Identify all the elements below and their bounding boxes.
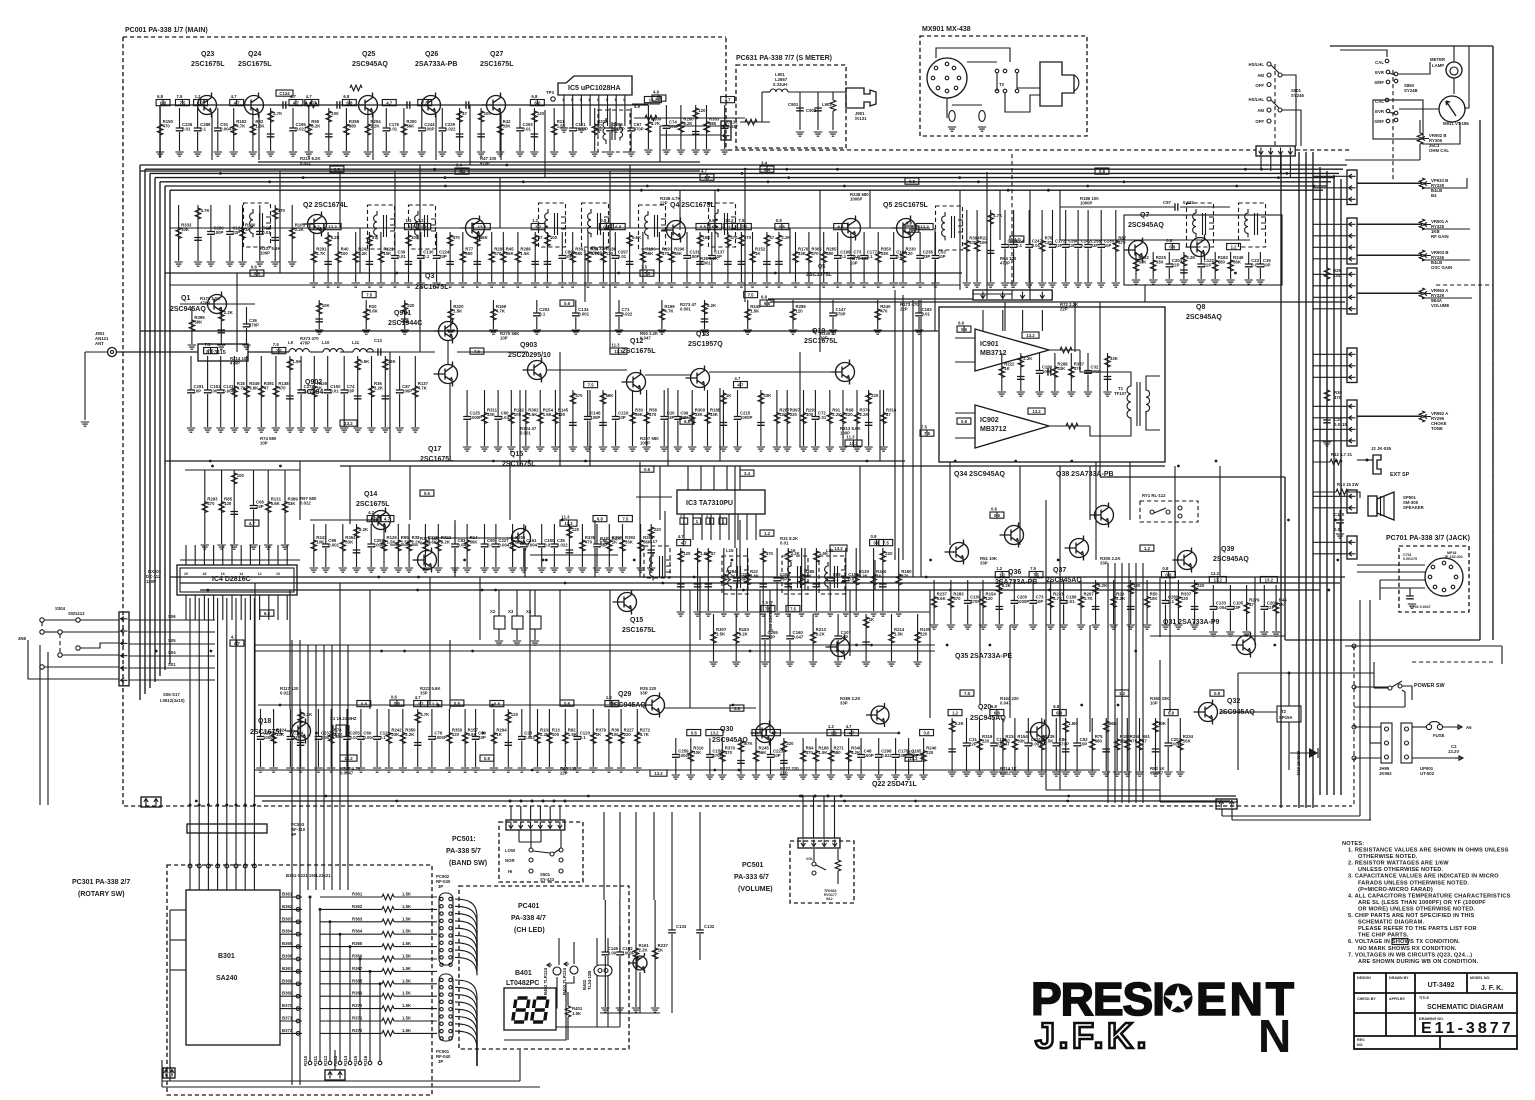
svg-text:7.5: 7.5 — [422, 100, 429, 105]
svg-text:L17: L17 — [650, 539, 658, 544]
svg-text:L8 L3115: L8 L3115 — [203, 350, 226, 356]
svg-text:10K: 10K — [181, 227, 190, 232]
svg-text:22P: 22P — [1055, 243, 1063, 248]
svg-text:B363: B363 — [282, 916, 293, 921]
svg-text:33K: 33K — [710, 412, 719, 417]
svg-text:6.8: 6.8 — [709, 218, 716, 223]
svg-text:C901: C901 — [788, 102, 799, 107]
svg-text:7.5: 7.5 — [641, 265, 648, 270]
svg-text:470: 470 — [744, 235, 752, 240]
svg-text:56K: 56K — [645, 251, 654, 256]
svg-text:4.7: 4.7 — [306, 94, 313, 99]
svg-text:6.8: 6.8 — [991, 704, 998, 709]
svg-text:10P: 10P — [194, 389, 202, 394]
svg-text:10P: 10P — [841, 635, 849, 640]
svg-text:1K: 1K — [876, 573, 882, 578]
svg-text:470P: 470P — [836, 312, 846, 317]
svg-text:220: 220 — [786, 741, 794, 746]
svg-text:B402 TLR124: B402 TLR124 — [543, 967, 548, 995]
svg-text:13.2: 13.2 — [1026, 333, 1035, 338]
svg-text:680: 680 — [826, 251, 834, 256]
svg-text:2SC1675L: 2SC1675L — [356, 501, 390, 508]
svg-text:0.01: 0.01 — [780, 541, 789, 546]
svg-text:220: 220 — [654, 527, 662, 532]
svg-text:13.2: 13.2 — [344, 421, 353, 426]
svg-text:C902: C902 — [806, 108, 817, 113]
svg-text:R365: R365 — [352, 941, 363, 946]
svg-text:0.8: 0.8 — [871, 534, 878, 539]
svg-text:2.2K: 2.2K — [1023, 356, 1033, 361]
svg-text:10P: 10P — [1036, 599, 1044, 604]
svg-text:0.6: 0.6 — [991, 507, 998, 512]
svg-text:120: 120 — [698, 108, 706, 113]
svg-text:B372: B372 — [282, 1028, 293, 1033]
svg-text:JE-152-002: JE-152-002 — [1444, 555, 1463, 559]
svg-text:680: 680 — [349, 123, 357, 128]
svg-text:SCHEMATIC DIAGRAM: SCHEMATIC DIAGRAM — [1427, 1004, 1504, 1011]
svg-text:33P: 33P — [1233, 605, 1241, 610]
svg-text:OHM CAL: OHM CAL — [1429, 148, 1449, 153]
svg-text:2.2K: 2.2K — [370, 123, 380, 128]
svg-text:8.2K: 8.2K — [359, 527, 369, 532]
svg-text:8.2K: 8.2K — [311, 123, 321, 128]
svg-text:33P: 33P — [439, 254, 447, 259]
svg-text:B301: B301 — [218, 953, 235, 960]
svg-text:470: 470 — [730, 235, 738, 240]
svg-text:2SC1675L: 2SC1675L — [191, 61, 225, 68]
svg-text:R364: R364 — [352, 929, 363, 934]
svg-text:R363: R363 — [352, 916, 363, 921]
svg-text:120: 120 — [224, 501, 232, 506]
svg-text:0.022: 0.022 — [622, 312, 633, 317]
svg-text:1K: 1K — [755, 251, 761, 256]
svg-text:C132: C132 — [704, 924, 715, 929]
svg-text:S01: S01 — [168, 662, 176, 667]
svg-text:2.2K: 2.2K — [295, 227, 305, 232]
svg-text:1.5K: 1.5K — [818, 750, 828, 755]
svg-text:22P: 22P — [1060, 307, 1068, 312]
svg-text:IC4 D2816C: IC4 D2816C — [212, 576, 251, 583]
svg-text:LOW: LOW — [505, 848, 516, 853]
svg-text:120: 120 — [572, 527, 580, 532]
svg-text:13.2: 13.2 — [710, 730, 719, 735]
svg-text:EVR: EVR — [1375, 109, 1385, 114]
svg-text:120: 120 — [511, 712, 519, 717]
svg-text:Q27: Q27 — [490, 51, 503, 58]
svg-text:33P: 33P — [667, 415, 675, 420]
svg-text:33K: 33K — [391, 732, 400, 737]
svg-text:1.2: 1.2 — [406, 218, 413, 223]
svg-text:RY1 RL-112: RY1 RL-112 — [1142, 493, 1166, 498]
svg-text:220: 220 — [926, 750, 934, 755]
svg-text:B401: B401 — [515, 970, 532, 977]
svg-text:2SC1675L: 2SC1675L — [806, 272, 832, 278]
svg-text:R13 15 2W: R13 15 2W — [1337, 482, 1359, 487]
svg-text:AM: AM — [1257, 108, 1264, 113]
svg-text:C133: C133 — [676, 924, 687, 929]
svg-text:4.7K: 4.7K — [420, 712, 430, 717]
svg-text:LAMP: LAMP — [1432, 63, 1444, 68]
svg-text:R368: R368 — [352, 978, 363, 983]
svg-text:6.8: 6.8 — [334, 167, 341, 172]
svg-text:11.3: 11.3 — [611, 343, 620, 348]
svg-text:47: 47 — [372, 235, 377, 240]
svg-text:Q5 2SC1675L: Q5 2SC1675L — [883, 202, 928, 209]
svg-text:0.8: 0.8 — [454, 701, 461, 706]
svg-text:2.2K: 2.2K — [1116, 596, 1126, 601]
svg-text:1: 1 — [571, 98, 573, 102]
svg-text:10P: 10P — [1104, 243, 1112, 248]
svg-text:13.2: 13.2 — [920, 224, 929, 229]
svg-text:E11-3877: E11-3877 — [1421, 1020, 1514, 1037]
svg-text:1: 1 — [588, 98, 590, 102]
svg-text:0.022: 0.022 — [300, 161, 311, 166]
svg-text:13.2: 13.2 — [1211, 571, 1220, 576]
svg-text:33P: 33P — [980, 561, 988, 566]
svg-text:PC701 PA-338 3/7 (JACK): PC701 PA-338 3/7 (JACK) — [1386, 535, 1470, 542]
svg-text:6.8: 6.8 — [264, 611, 271, 616]
svg-text:8.2K: 8.2K — [1098, 583, 1108, 588]
svg-text:0.6: 0.6 — [958, 321, 965, 326]
svg-text:1: 1 — [623, 98, 625, 102]
svg-text:2.2K: 2.2K — [639, 947, 649, 952]
svg-text:33P: 33P — [256, 504, 264, 509]
svg-text:0.001: 0.001 — [578, 312, 589, 317]
svg-text:Q35 2SA733A-PE: Q35 2SA733A-PE — [955, 653, 1013, 660]
svg-text:2SA733A-PB: 2SA733A-PB — [415, 61, 457, 68]
svg-text:0.8: 0.8 — [776, 218, 783, 223]
svg-text:56K: 56K — [506, 251, 515, 256]
svg-text:1.2: 1.2 — [606, 695, 613, 700]
svg-text:Q29: Q29 — [618, 691, 631, 698]
svg-text:B367: B367 — [282, 966, 293, 971]
svg-text:7.5: 7.5 — [883, 540, 890, 545]
svg-text:JK952: JK952 — [1379, 771, 1392, 776]
svg-text:470: 470 — [901, 573, 909, 578]
svg-text:1.5K: 1.5K — [402, 954, 412, 959]
svg-text:2SC945AQ: 2SC945AQ — [352, 61, 388, 68]
svg-text:100P: 100P — [402, 389, 412, 394]
svg-text:Q33 2SC945AQ: Q33 2SC945AQ — [768, 600, 773, 632]
svg-text:0.047: 0.047 — [793, 635, 804, 640]
svg-text:120: 120 — [452, 732, 460, 737]
svg-text:R366: R366 — [352, 954, 363, 959]
svg-text:470P: 470P — [200, 301, 210, 306]
svg-text:56K: 56K — [606, 393, 615, 398]
svg-text:100: 100 — [237, 473, 245, 478]
svg-text:0.1: 0.1 — [580, 735, 587, 740]
svg-text:Q26: Q26 — [425, 51, 438, 58]
svg-text:10K: 10K — [980, 240, 989, 245]
svg-text:0.022: 0.022 — [420, 541, 431, 546]
svg-text:1.5K: 1.5K — [520, 251, 530, 256]
svg-text:0.047: 0.047 — [1000, 701, 1011, 706]
svg-text:1.5K: 1.5K — [402, 929, 412, 934]
svg-text:470P: 470P — [480, 161, 490, 166]
svg-text:470: 470 — [207, 501, 215, 506]
svg-text:2.2K: 2.2K — [374, 385, 384, 390]
svg-text:220: 220 — [1197, 583, 1205, 588]
svg-text:Q15: Q15 — [630, 617, 643, 624]
svg-text:10K: 10K — [322, 303, 331, 308]
svg-text:33K: 33K — [288, 501, 297, 506]
svg-text:1.2: 1.2 — [418, 218, 425, 223]
svg-text:S304: S304 — [55, 606, 66, 611]
svg-text:1K: 1K — [596, 732, 602, 737]
svg-text:METER: METER — [1430, 57, 1446, 62]
svg-text:0.1: 0.1 — [200, 127, 207, 132]
svg-text:8.2K: 8.2K — [739, 631, 749, 636]
svg-text:0.022: 0.022 — [300, 501, 311, 506]
svg-text:2SC1675L: 2SC1675L — [480, 61, 514, 68]
svg-text:S04: S04 — [168, 650, 176, 655]
svg-text:8.2K: 8.2K — [955, 721, 965, 726]
svg-text:470P: 470P — [634, 127, 644, 132]
svg-text:Q13: Q13 — [696, 331, 709, 338]
svg-text:PC401: PC401 — [518, 903, 540, 910]
svg-text:Q901: Q901 — [394, 310, 411, 317]
svg-text:6.8: 6.8 — [734, 706, 741, 711]
svg-text:MX901 MX-438: MX901 MX-438 — [922, 26, 971, 33]
svg-text:1.5K: 1.5K — [894, 631, 904, 636]
svg-text:100: 100 — [484, 111, 492, 116]
svg-text:VOLUME: VOLUME — [1431, 303, 1450, 308]
svg-text:R370: R370 — [352, 1003, 363, 1008]
svg-text:X3: X3 — [508, 609, 514, 614]
svg-text:7.5: 7.5 — [748, 292, 755, 297]
svg-text:0.1: 0.1 — [1016, 243, 1023, 248]
svg-text:Q20: Q20 — [978, 704, 991, 711]
svg-text:S05: S05 — [168, 638, 176, 643]
svg-text:SY24B: SY24B — [1404, 88, 1418, 93]
svg-text:HS/LHL: HS/LHL — [1248, 62, 1264, 67]
svg-text:6.8: 6.8 — [597, 516, 604, 521]
svg-text:/K131: /K131 — [855, 116, 867, 121]
svg-text:1.5K: 1.5K — [716, 631, 726, 636]
svg-text:OFF: OFF — [1255, 119, 1264, 124]
svg-text:47: 47 — [538, 235, 543, 240]
svg-text:1: 1 — [606, 98, 608, 102]
svg-text:1.5K: 1.5K — [402, 941, 412, 946]
svg-text:7.5: 7.5 — [790, 606, 797, 611]
svg-text:IC901: IC901 — [980, 341, 999, 348]
svg-text:4.7: 4.7 — [231, 635, 238, 640]
svg-text:33K: 33K — [695, 412, 704, 417]
svg-text:100: 100 — [550, 235, 558, 240]
svg-text:120: 120 — [558, 412, 566, 417]
svg-text:100P: 100P — [640, 441, 650, 446]
svg-text:B362: B362 — [282, 904, 293, 909]
svg-text:PC501:: PC501: — [452, 836, 476, 843]
svg-text:Q4 2SC1675L: Q4 2SC1675L — [670, 202, 715, 209]
svg-text:4.7K: 4.7K — [201, 208, 211, 213]
svg-text:1.5K: 1.5K — [402, 978, 412, 983]
svg-text:47: 47 — [769, 235, 774, 240]
svg-text:22P: 22P — [560, 771, 568, 776]
svg-text:1K: 1K — [1004, 366, 1010, 371]
svg-text:8.2K: 8.2K — [1002, 583, 1012, 588]
svg-text:4.7: 4.7 — [701, 169, 708, 174]
svg-text:0.8: 0.8 — [756, 730, 763, 735]
svg-text:0.8: 0.8 — [700, 224, 707, 229]
svg-text:0.022: 0.022 — [600, 541, 611, 546]
svg-text:C97: C97 — [1163, 200, 1171, 205]
svg-text:1.2: 1.2 — [1231, 244, 1238, 249]
svg-text:220: 220 — [871, 393, 879, 398]
svg-text:2.2K: 2.2K — [358, 251, 368, 256]
svg-text:SA240: SA240 — [216, 975, 238, 982]
svg-text:10P: 10P — [1080, 742, 1088, 747]
svg-text:0.001/79: 0.001/79 — [1403, 557, 1417, 561]
svg-text:4.7K: 4.7K — [651, 121, 661, 126]
svg-text:5.6K: 5.6K — [249, 385, 259, 390]
svg-text:B370: B370 — [282, 1003, 293, 1008]
svg-text:4.9: 4.9 — [653, 90, 660, 95]
svg-text:10K: 10K — [1183, 738, 1192, 743]
svg-text:5.6K: 5.6K — [750, 573, 760, 578]
svg-text:SY246: SY246 — [1291, 93, 1305, 98]
svg-text:22P: 22P — [660, 201, 668, 206]
svg-text:470P: 470P — [230, 361, 240, 366]
svg-text:R371: R371 — [352, 1016, 363, 1021]
svg-text:33K: 33K — [1139, 259, 1148, 264]
svg-text:C124: C124 — [279, 91, 290, 96]
svg-text:4.7K: 4.7K — [664, 308, 674, 313]
svg-text:B366: B366 — [282, 954, 293, 959]
svg-text:18: 18 — [202, 572, 206, 576]
svg-text:Q34 2SC945AQ: Q34 2SC945AQ — [954, 471, 1006, 478]
svg-text:TP3: TP3 — [546, 90, 554, 95]
svg-text:470: 470 — [649, 412, 657, 417]
svg-text:0.8: 0.8 — [1166, 238, 1173, 243]
svg-text:47: 47 — [711, 551, 716, 556]
svg-text:7.5: 7.5 — [176, 94, 183, 99]
svg-text:4.7K: 4.7K — [418, 385, 428, 390]
svg-text:1.5K: 1.5K — [402, 916, 412, 921]
svg-text:220: 220 — [407, 303, 415, 308]
svg-text:4.7: 4.7 — [725, 97, 732, 102]
svg-text:100: 100 — [514, 412, 522, 417]
svg-text:NO.: NO. — [1357, 1043, 1363, 1047]
svg-text:3. CAPACITANCE VALUES ARE INDI: 3. CAPACITANCE VALUES ARE INDICATED IN M… — [1348, 874, 1499, 880]
svg-text:L15: L15 — [726, 548, 734, 553]
svg-text:1000P: 1000P — [613, 127, 626, 132]
svg-text:B369: B369 — [282, 991, 293, 996]
svg-text:0.01: 0.01 — [922, 312, 931, 317]
svg-text:3.4: 3.4 — [761, 161, 768, 166]
svg-text:10P: 10P — [938, 254, 946, 259]
svg-text:100P: 100P — [213, 230, 223, 235]
svg-text:6.8: 6.8 — [761, 295, 768, 300]
svg-text:FUSE: FUSE — [1433, 733, 1445, 738]
svg-text:DRAWN BY: DRAWN BY — [1389, 976, 1409, 980]
svg-text:R12 4.7 21: R12 4.7 21 — [1331, 452, 1353, 457]
svg-text:PLEASE REFER TO THE PARTS LIST: PLEASE REFER TO THE PARTS LIST FOR — [1358, 926, 1477, 932]
svg-text:B4: B4 — [1431, 193, 1437, 198]
svg-text:2SC945AQ: 2SC945AQ — [170, 306, 206, 313]
svg-text:470P: 470P — [249, 323, 259, 328]
svg-text:0.8: 0.8 — [691, 730, 698, 735]
svg-text:B365: B365 — [282, 941, 293, 946]
svg-text:7.5: 7.5 — [738, 218, 745, 223]
svg-text:3N8: 3N8 — [18, 636, 26, 641]
svg-text:13.2: 13.2 — [725, 218, 734, 223]
svg-text:L9: L9 — [288, 340, 294, 345]
svg-text:2.2K: 2.2K — [781, 235, 791, 240]
svg-text:0.1: 0.1 — [1168, 599, 1175, 604]
svg-text:1000P: 1000P — [1080, 201, 1093, 206]
svg-text:S06: S06 — [168, 614, 176, 619]
svg-text:0.01: 0.01 — [1334, 527, 1343, 532]
svg-text:56K: 56K — [635, 412, 644, 417]
svg-text:4.7: 4.7 — [846, 724, 853, 729]
svg-text:33K: 33K — [503, 123, 512, 128]
svg-text:0.6: 0.6 — [961, 419, 968, 424]
svg-text:0.6: 0.6 — [391, 695, 398, 700]
svg-text:8.2K: 8.2K — [683, 121, 693, 126]
svg-text:6.8: 6.8 — [1053, 704, 1060, 709]
svg-text:4.7: 4.7 — [249, 521, 256, 526]
svg-text:0.01: 0.01 — [818, 415, 827, 420]
svg-text:100P: 100P — [260, 251, 270, 256]
svg-text:OR MORE) UNLESS OTHERWISE NOTE: OR MORE) UNLESS OTHERWISE NOTED. — [1358, 907, 1475, 913]
svg-text:7.5: 7.5 — [588, 382, 595, 387]
svg-text:TITLE: TITLE — [1419, 996, 1430, 1000]
svg-text:10K: 10K — [693, 750, 702, 755]
svg-text:0.01: 0.01 — [618, 254, 627, 259]
svg-text:470: 470 — [766, 551, 774, 556]
svg-text:1.5K: 1.5K — [750, 308, 760, 313]
svg-text:L10: L10 — [322, 340, 330, 345]
svg-text:33K: 33K — [1110, 356, 1119, 361]
svg-text:1K: 1K — [317, 385, 323, 390]
svg-text:33K: 33K — [388, 359, 397, 364]
svg-text:12: 12 — [258, 572, 262, 576]
svg-text:SP15A: SP15A — [1279, 715, 1293, 720]
svg-text:NOTES:: NOTES: — [1342, 841, 1364, 847]
svg-text:THE CHIP PARTS.: THE CHIP PARTS. — [1358, 933, 1409, 939]
svg-text:4.7K: 4.7K — [744, 741, 754, 746]
svg-text:4.7: 4.7 — [1014, 237, 1021, 242]
svg-text:120: 120 — [1133, 583, 1141, 588]
svg-text:5A2: 5A2 — [826, 897, 833, 901]
svg-text:220: 220 — [982, 738, 990, 743]
svg-text:4.7K: 4.7K — [496, 308, 506, 313]
svg-text:R362: R362 — [352, 904, 363, 909]
svg-text:1.2: 1.2 — [532, 218, 539, 223]
svg-text:OFF: OFF — [1255, 83, 1264, 88]
svg-text:1.5K: 1.5K — [402, 1003, 412, 1008]
svg-text:47: 47 — [1005, 738, 1010, 743]
svg-text:100P: 100P — [690, 254, 700, 259]
svg-text:0.01: 0.01 — [1066, 599, 1075, 604]
svg-text:33P: 33P — [478, 735, 486, 740]
svg-text:9P: 9P — [291, 832, 296, 837]
svg-text:R314: R314 — [343, 1055, 348, 1066]
svg-text:13.2: 13.2 — [344, 756, 353, 761]
svg-text:470: 470 — [453, 235, 461, 240]
svg-text:2SC945AQ: 2SC945AQ — [1186, 314, 1222, 321]
svg-text:0.001: 0.001 — [700, 261, 711, 266]
svg-text:2SC1944C: 2SC1944C — [388, 320, 422, 327]
svg-text:1000P: 1000P — [470, 415, 483, 420]
svg-text:0.8: 0.8 — [1099, 169, 1106, 174]
svg-text:J. F. K.: J. F. K. — [1481, 985, 1503, 992]
svg-text:100: 100 — [552, 732, 560, 737]
svg-text:10P: 10P — [820, 336, 828, 341]
svg-text:220: 220 — [624, 732, 632, 737]
svg-text:APPD.BY: APPD.BY — [1389, 997, 1406, 1001]
